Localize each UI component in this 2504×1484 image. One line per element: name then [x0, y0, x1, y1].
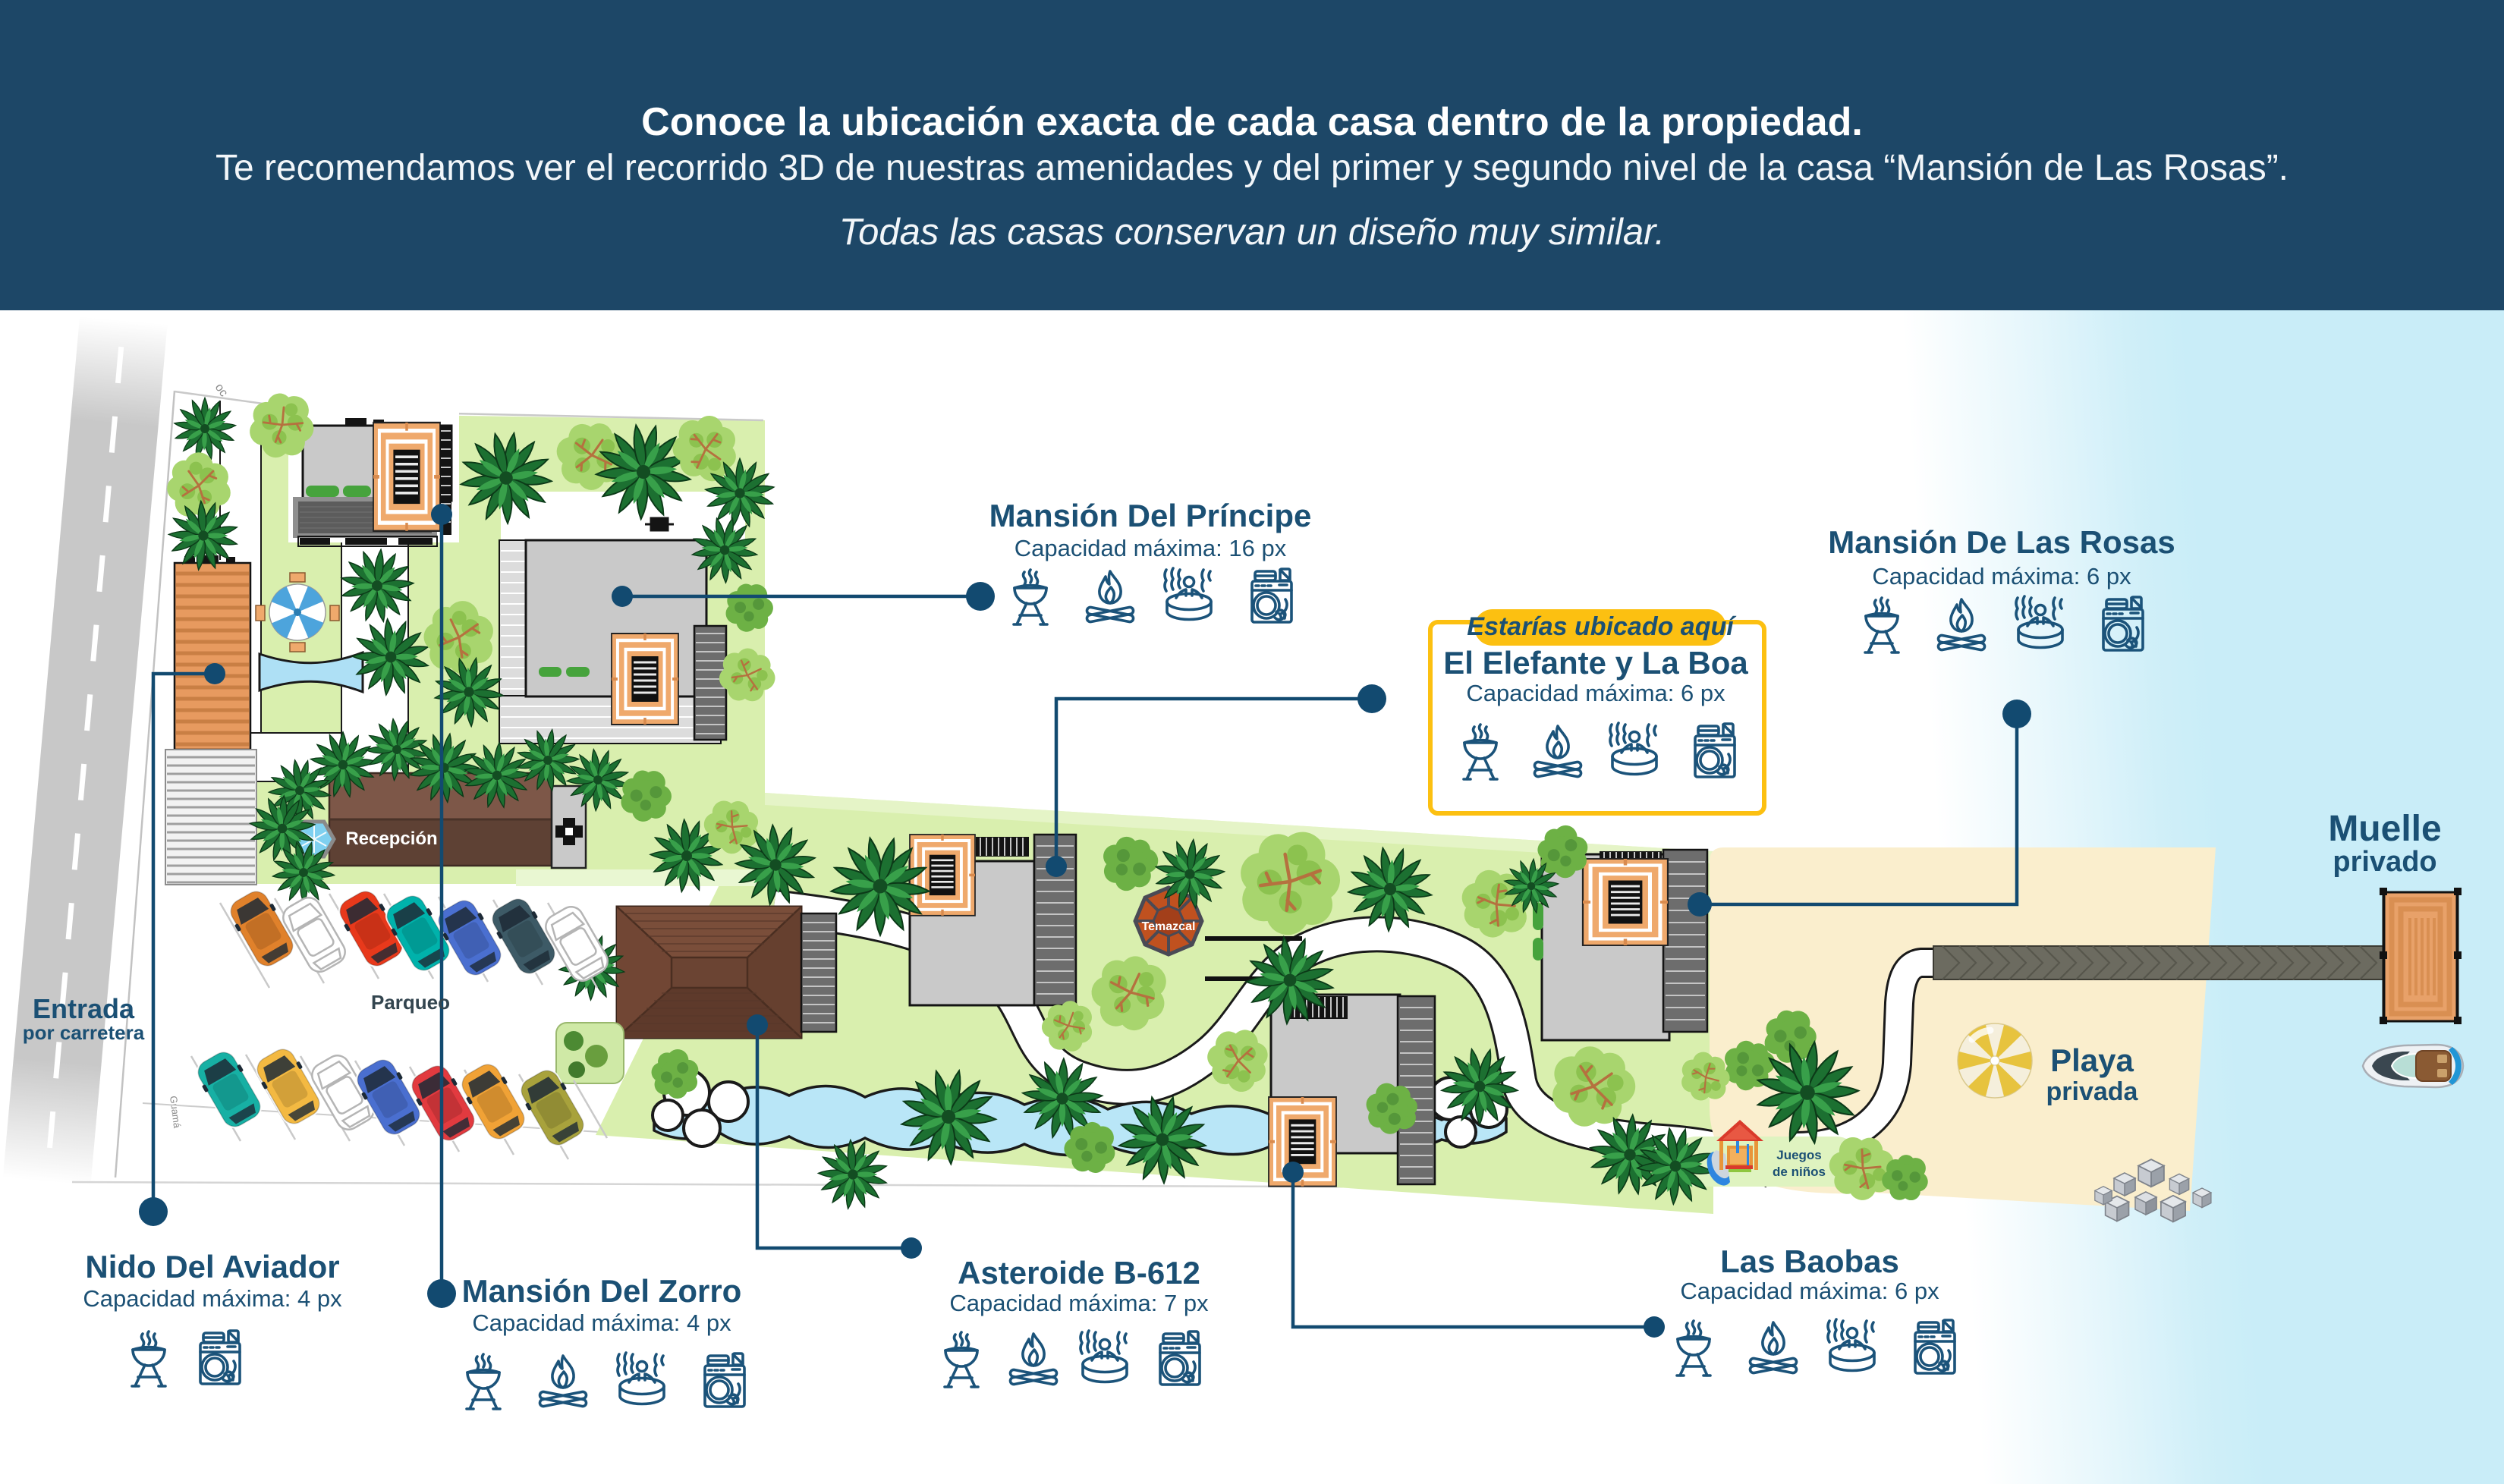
svg-text:Parqueo: Parqueo	[371, 991, 450, 1014]
svg-text:Conoce la ubicación exacta de: Conoce la ubicación exacta de cada casa …	[641, 100, 1863, 144]
svg-text:Estarías ubicado aquí: Estarías ubicado aquí	[1467, 612, 1737, 641]
svg-text:Te recomendamos ver el recorri: Te recomendamos ver el recorrido 3D de n…	[215, 148, 2289, 188]
svg-text:Capacidad máxima: 7 px: Capacidad máxima: 7 px	[949, 1290, 1209, 1316]
svg-text:Muelle: Muelle	[2328, 809, 2441, 849]
svg-text:por carretera: por carretera	[23, 1021, 145, 1044]
svg-text:Capacidad máxima: 6 px: Capacidad máxima: 6 px	[1680, 1278, 1939, 1304]
svg-text:privado: privado	[2333, 846, 2436, 878]
svg-text:Temazcal: Temazcal	[1142, 920, 1196, 933]
svg-text:de niños: de niños	[1773, 1165, 1826, 1179]
svg-text:Capacidad máxima: 4 px: Capacidad máxima: 4 px	[472, 1310, 731, 1336]
svg-text:Mansión De Las Rosas: Mansión De Las Rosas	[1828, 524, 2175, 560]
svg-text:Capacidad máxima: 6 px: Capacidad máxima: 6 px	[1466, 680, 1725, 706]
svg-text:Capacidad máxima: 4 px: Capacidad máxima: 4 px	[83, 1285, 342, 1312]
svg-text:Mansión Del Zorro: Mansión Del Zorro	[462, 1273, 742, 1309]
svg-text:Recepción: Recepción	[345, 828, 437, 849]
svg-text:Asteroide B-612: Asteroide B-612	[958, 1255, 1200, 1291]
svg-text:Mansión Del Príncipe: Mansión Del Príncipe	[989, 498, 1312, 533]
svg-text:Las Baobas: Las Baobas	[1720, 1243, 1899, 1279]
svg-text:Playa: Playa	[2050, 1042, 2134, 1078]
svg-text:Capacidad máxima: 16 px: Capacidad máxima: 16 px	[1014, 535, 1287, 561]
svg-text:El Elefante y La Boa: El Elefante y La Boa	[1443, 645, 1748, 681]
svg-text:Todas las casas conservan un d: Todas las casas conservan un diseño muy …	[839, 212, 1666, 253]
svg-text:Nido Del Aviador: Nido Del Aviador	[85, 1249, 339, 1284]
svg-text:Entrada: Entrada	[33, 993, 135, 1024]
svg-text:privada: privada	[2046, 1077, 2139, 1106]
svg-text:Capacidad máxima: 6 px: Capacidad máxima: 6 px	[1872, 563, 2131, 590]
svg-text:Juegos: Juegos	[1776, 1148, 1822, 1162]
